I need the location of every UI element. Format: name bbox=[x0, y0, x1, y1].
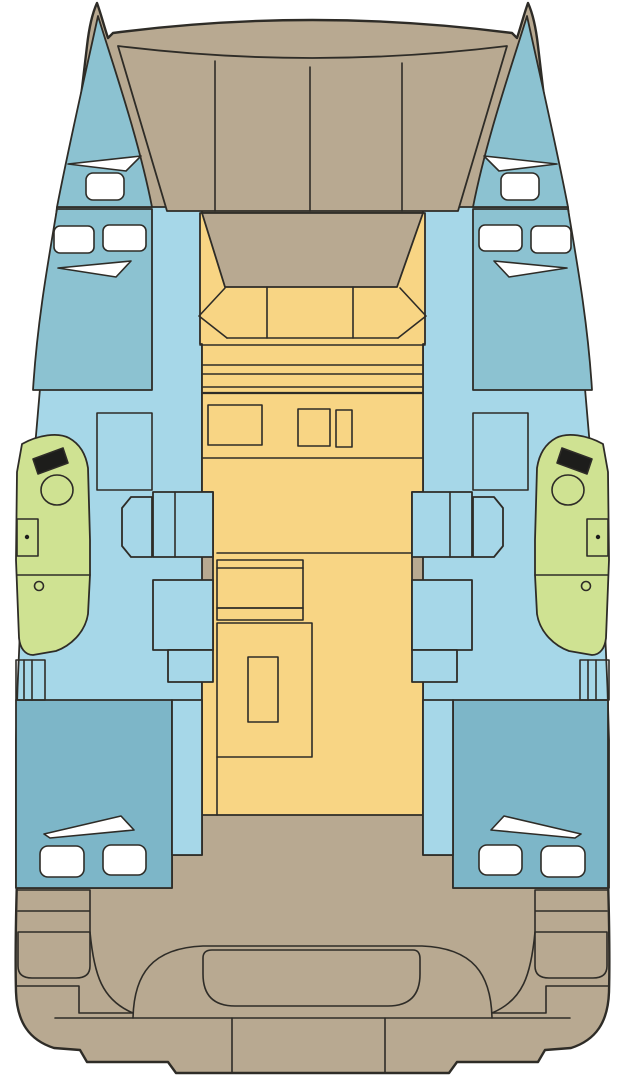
port-cabinet-small bbox=[168, 650, 213, 682]
port-steps bbox=[153, 492, 213, 557]
catamaran-deck-plan bbox=[0, 0, 625, 1080]
starboard-cabinet bbox=[412, 580, 472, 650]
starboard-companionway bbox=[423, 700, 453, 855]
deck-plan-svg bbox=[0, 0, 625, 1080]
foredeck-trampoline bbox=[118, 46, 507, 211]
forward-cockpit-well bbox=[202, 213, 423, 287]
starboard-aft-window bbox=[479, 845, 522, 875]
starboard-fwd-window bbox=[531, 226, 571, 253]
starboard-sink-drain bbox=[596, 535, 600, 539]
starboard-fwd-window bbox=[479, 225, 522, 251]
port-fwd-window bbox=[103, 225, 146, 251]
starboard-head bbox=[535, 435, 609, 655]
starboard-steps bbox=[412, 492, 472, 557]
starboard-hull-seat bbox=[473, 497, 503, 557]
port-fwd-window bbox=[54, 226, 94, 253]
port-bow-hatch bbox=[86, 173, 124, 200]
port-aft-window bbox=[103, 845, 146, 875]
starboard-cabinet-small bbox=[412, 650, 457, 682]
port-hull-seat bbox=[122, 497, 152, 557]
starboard-bow-hatch bbox=[501, 173, 539, 200]
port-head bbox=[16, 435, 90, 655]
port-sink-drain bbox=[25, 535, 29, 539]
port-cabinet bbox=[153, 580, 213, 650]
starboard-aft-window bbox=[541, 846, 585, 877]
port-companionway bbox=[172, 700, 202, 855]
port-aft-window bbox=[40, 846, 84, 877]
